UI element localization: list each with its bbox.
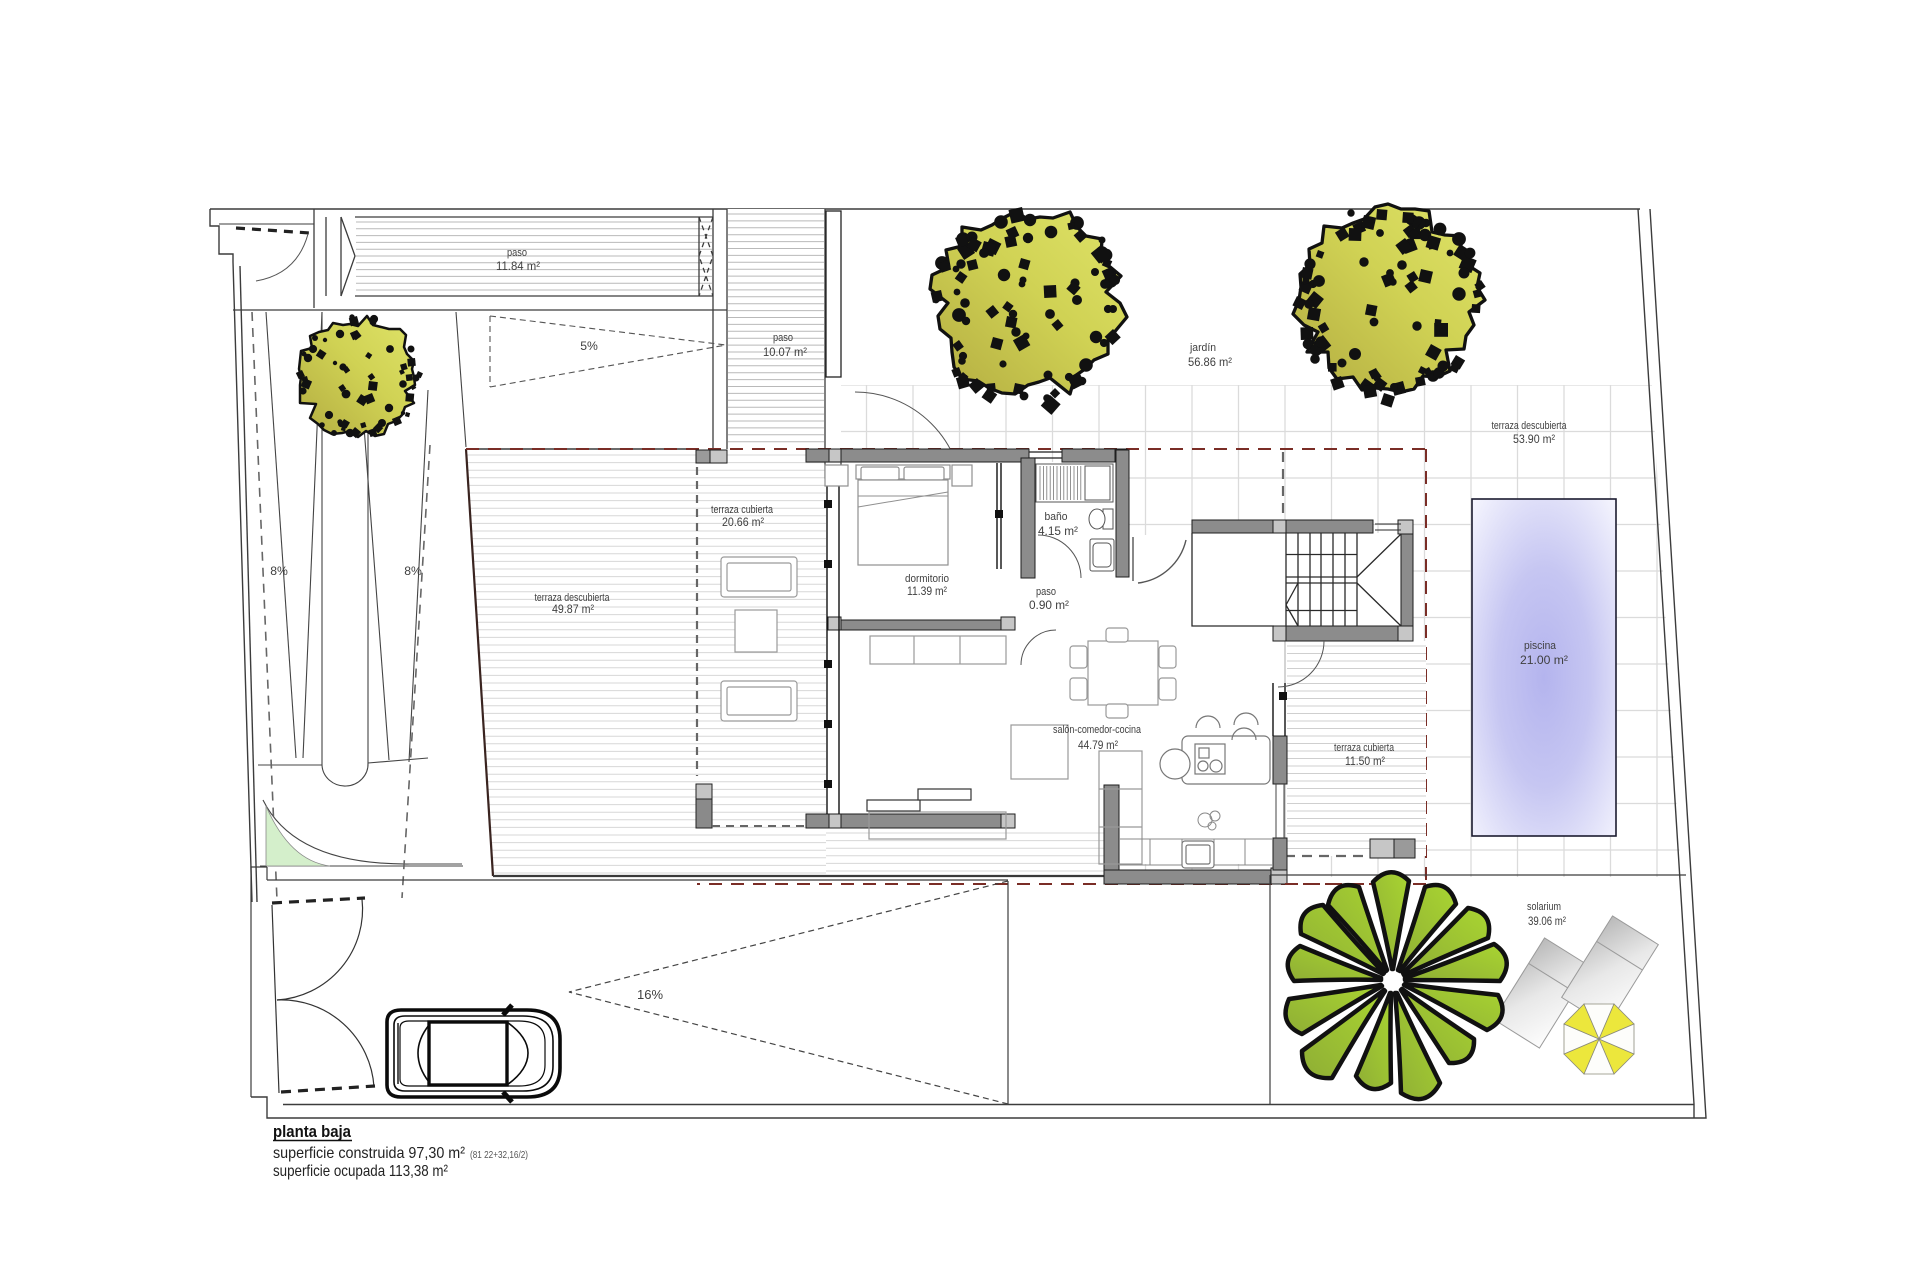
svg-text:5%: 5%: [580, 339, 598, 353]
svg-text:superficie ocupada 113,38 m²: superficie ocupada 113,38 m²: [273, 1163, 449, 1180]
svg-text:baño: baño: [1045, 511, 1068, 523]
svg-text:(81 22+32,16/2): (81 22+32,16/2): [470, 1149, 528, 1161]
svg-text:21.00 m²: 21.00 m²: [1520, 653, 1568, 667]
svg-text:paso: paso: [507, 247, 527, 259]
svg-text:11.50 m²: 11.50 m²: [1345, 754, 1385, 768]
svg-text:jardín: jardín: [1189, 342, 1216, 354]
svg-text:terraza cubierta: terraza cubierta: [1334, 742, 1395, 754]
svg-text:superficie construida 97,30 m²: superficie construida 97,30 m²: [273, 1145, 466, 1162]
svg-text:8%: 8%: [270, 564, 288, 578]
svg-text:piscina: piscina: [1524, 640, 1557, 652]
svg-text:4.15 m²: 4.15 m²: [1038, 524, 1078, 538]
svg-text:paso: paso: [1036, 586, 1056, 598]
svg-text:0.90 m²: 0.90 m²: [1029, 598, 1069, 612]
svg-text:paso: paso: [773, 332, 793, 344]
svg-text:16%: 16%: [637, 987, 663, 1002]
svg-text:11.39 m²: 11.39 m²: [907, 584, 947, 598]
svg-text:10.07 m²: 10.07 m²: [763, 345, 807, 359]
svg-text:planta baja: planta baja: [273, 1123, 352, 1141]
svg-text:56.86 m²: 56.86 m²: [1188, 355, 1232, 369]
svg-text:39.06 m²: 39.06 m²: [1528, 914, 1566, 928]
svg-text:53.90 m²: 53.90 m²: [1513, 432, 1555, 446]
svg-text:44.79 m²: 44.79 m²: [1078, 738, 1118, 752]
svg-text:49.87 m²: 49.87 m²: [552, 602, 594, 616]
svg-text:solarium: solarium: [1527, 901, 1561, 913]
svg-text:11.84 m²: 11.84 m²: [496, 259, 540, 273]
svg-text:salón-comedor-cocina: salón-comedor-cocina: [1053, 724, 1142, 736]
svg-text:8%: 8%: [404, 564, 422, 578]
svg-text:terraza descubierta: terraza descubierta: [1492, 420, 1568, 432]
svg-text:20.66 m²: 20.66 m²: [722, 515, 764, 529]
